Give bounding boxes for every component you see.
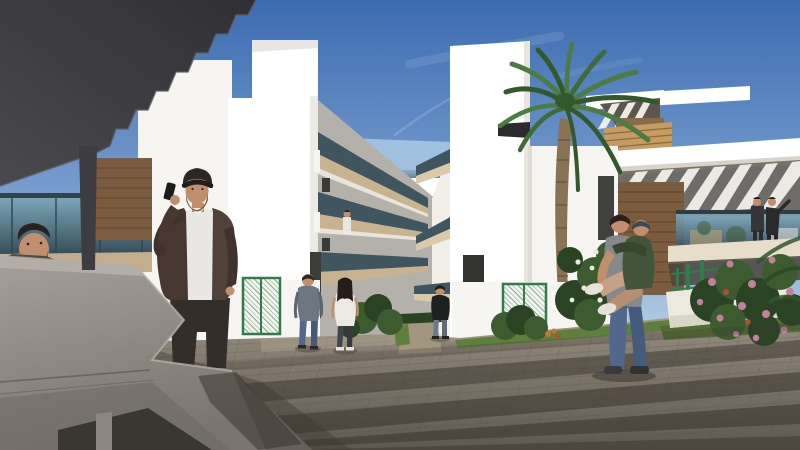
- balcony-resident: [343, 210, 351, 234]
- bench-leg: [96, 412, 112, 450]
- tall-window-slit: [598, 176, 614, 240]
- canopy-support-pillar: [79, 146, 97, 270]
- architectural-render-scene: [0, 0, 800, 450]
